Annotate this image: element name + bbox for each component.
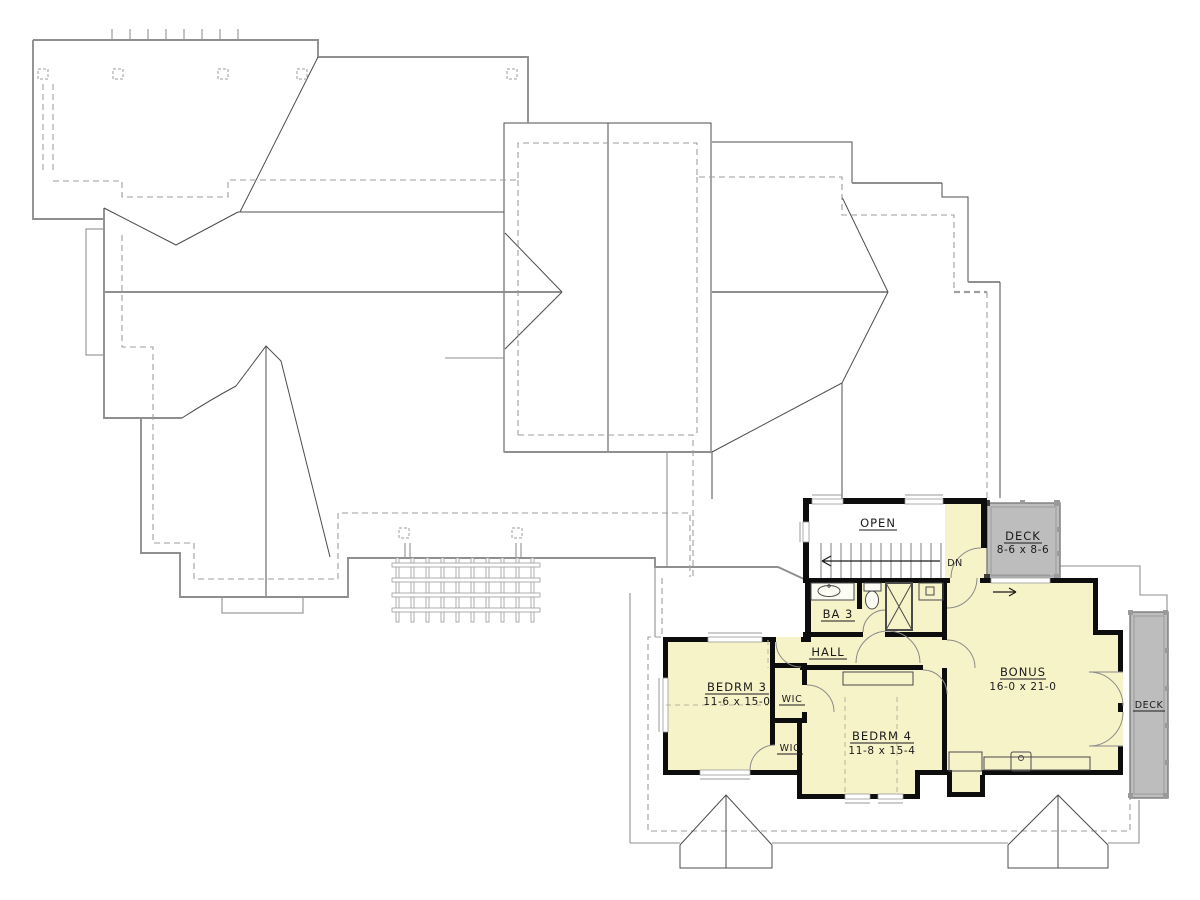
trellis	[392, 543, 540, 622]
stairs-dn-label: DN	[947, 558, 963, 569]
floor-plan-page: OPEN DN DECK 8-6 x 8-6 BA 3 HALL BEDRM 3…	[0, 0, 1200, 900]
hall-label: HALL	[811, 645, 844, 659]
upper-deck-label: DECK	[1005, 529, 1041, 543]
bonus-size: 16-0 x 21-0	[989, 681, 1056, 693]
bath3-label: BA 3	[823, 607, 854, 621]
bonus-label: BONUS	[1000, 665, 1046, 679]
floor-plan-drawing: OPEN DN DECK 8-6 x 8-6 BA 3 HALL BEDRM 3…	[0, 0, 1200, 900]
upper-deck-size: 8-6 x 8-6	[997, 544, 1050, 556]
wic-upper-label: WIC	[782, 694, 803, 705]
bedroom3-label: BEDRM 3	[707, 680, 767, 694]
open-label: OPEN	[860, 516, 896, 530]
vanity-sink-icon	[811, 583, 854, 600]
right-deck-label: DECK	[1135, 700, 1164, 711]
bedroom4-label: BEDRM 4	[852, 729, 912, 743]
post-markers	[38, 69, 522, 538]
wic-lower-label: WIC	[780, 743, 801, 754]
bedroom3-size: 11-6 x 15-0	[703, 696, 770, 708]
bedroom4-size: 11-8 x 15-4	[848, 745, 915, 757]
